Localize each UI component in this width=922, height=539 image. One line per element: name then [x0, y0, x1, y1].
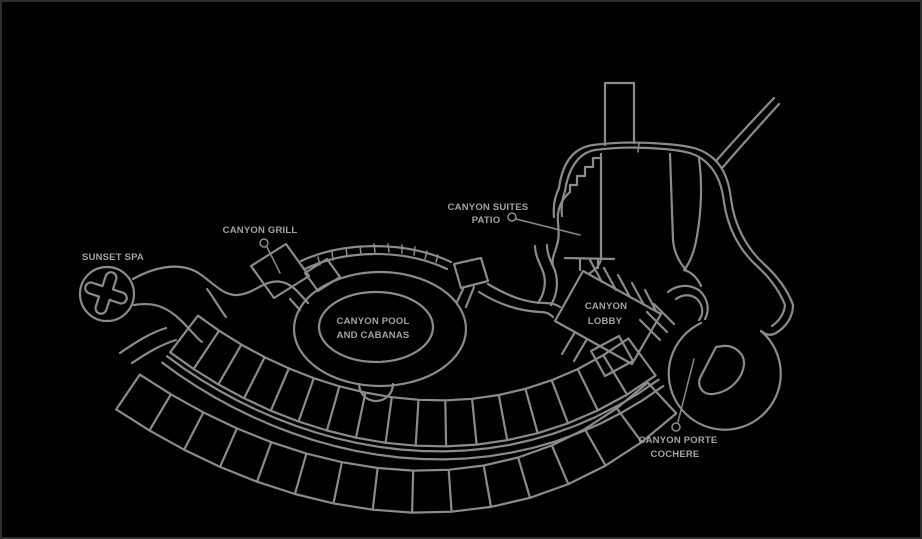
suites-interior-wall-2 [670, 154, 686, 270]
patio-leader-dot [508, 213, 516, 221]
suites-east-edge [684, 159, 701, 286]
pavilion-pool-connector-1 [457, 289, 463, 302]
sunset-spa-group [79, 266, 297, 363]
resort-map-svg: SUNSET SPA CANYON GRILL CANYON POOL AND … [2, 2, 922, 539]
label-canyon-grill: CANYON GRILL [223, 225, 298, 236]
porte-cochere-island [699, 346, 744, 394]
inner-casitas-band-divisions [194, 331, 627, 447]
casitas-walkway-line-1 [167, 356, 658, 451]
suites-top-wing-sides [605, 105, 634, 145]
spa-path-fork [207, 289, 226, 317]
label-canyon-lobby-line1: CANYON [585, 301, 627, 312]
labels-group: SUNSET SPA CANYON GRILL CANYON POOL AND … [82, 202, 717, 460]
label-porte-cochere-line2: COCHERE [651, 449, 700, 460]
grill-leader-dot [260, 239, 268, 247]
road-branch-line-2 [723, 104, 779, 167]
grill-building [251, 244, 309, 298]
label-sunset-spa: SUNSET SPA [82, 252, 144, 263]
label-canyon-pool-line1: CANYON POOL [337, 316, 410, 327]
porte-leader-dot [672, 423, 680, 431]
resort-site-map: SUNSET SPA CANYON GRILL CANYON POOL AND … [0, 0, 922, 539]
lobby-porte-connectors [640, 304, 674, 340]
porte-leader-line [678, 359, 694, 422]
patio-leader-line [516, 219, 580, 235]
suites-interior-wall-1 [590, 154, 601, 273]
label-porte-cochere-line1: CANYON PORTE [639, 435, 718, 446]
trellis-end-pavilion [454, 258, 488, 288]
spa-path-upper [133, 267, 297, 295]
porte-cochere-group [668, 286, 781, 431]
label-canyon-pool-line2: AND CABANAS [337, 330, 410, 341]
label-canyon-suites-line2: PATIO [472, 215, 501, 226]
pool-deck-connector [290, 292, 308, 310]
suites-top-wing [605, 83, 634, 105]
pool-lobby-path-group [479, 245, 560, 317]
canyon-suites-group [553, 83, 702, 286]
label-canyon-suites-line1: CANYON SUITES [448, 202, 529, 213]
porte-cochere-loop [669, 323, 781, 430]
porte-entry-inner [676, 295, 702, 320]
patio-walk-line-1 [535, 246, 545, 303]
spa-stub-path-1 [120, 328, 166, 353]
outer-casitas-band-divisions [149, 394, 641, 512]
label-canyon-lobby-line2: LOBBY [588, 316, 623, 327]
roads-group [554, 98, 793, 335]
suites-patio-leader-group [508, 213, 580, 235]
patio-walk-line-2 [547, 245, 557, 305]
suites-stepped-west-edge [553, 158, 601, 266]
road-branch-line-1 [716, 98, 774, 161]
pool-ellipse [319, 292, 433, 362]
trellis-arc-group [301, 244, 488, 307]
casitas-bands [116, 316, 676, 513]
suites-patio-edge [565, 258, 614, 259]
pavilion-pool-connector-2 [466, 287, 474, 307]
